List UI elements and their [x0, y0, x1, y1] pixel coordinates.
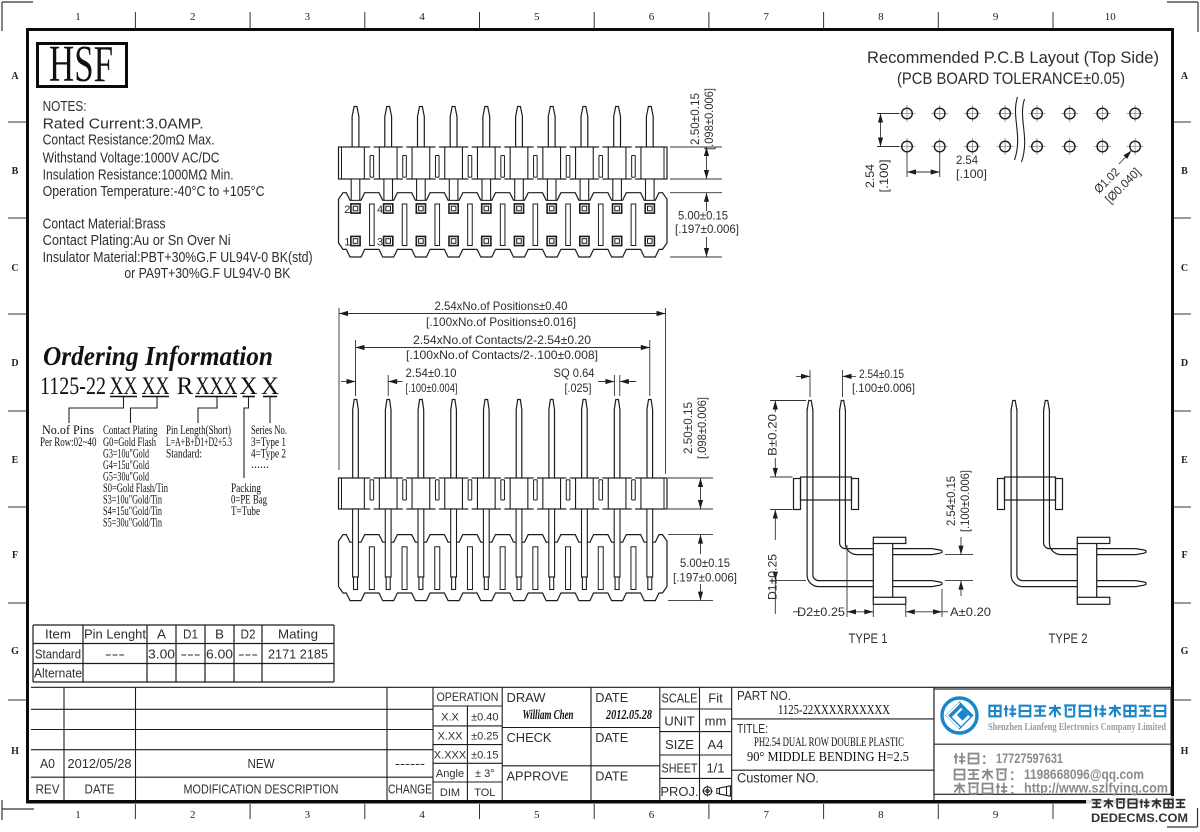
svg-text:[.100±0.004]: [.100±0.004]	[406, 381, 458, 395]
svg-text:DATE: DATE	[595, 769, 628, 784]
svg-text:TYPE 1: TYPE 1	[849, 630, 888, 646]
svg-text:8: 8	[878, 809, 884, 821]
svg-text:Contact Resistance:20mΩ Max.: Contact Resistance:20mΩ Max.	[43, 132, 215, 149]
svg-text:PH2.54 DUAL ROW DOUBLE PLASTIC: PH2.54 DUAL ROW DOUBLE PLASTIC	[754, 734, 904, 749]
svg-text:[.025]: [.025]	[565, 381, 592, 395]
svg-text:17727597631: 17727597631	[996, 750, 1063, 766]
svg-text:or PA9T+30%G.F UL94V-0 BK: or PA9T+30%G.F UL94V-0 BK	[124, 265, 290, 282]
svg-text:HSF: HSF	[49, 36, 113, 93]
svg-text:：: ：	[1009, 768, 1022, 783]
svg-text:Withstand Voltage:1000V AC/DC: Withstand Voltage:1000V AC/DC	[43, 150, 220, 167]
svg-text:6: 6	[649, 809, 655, 821]
svg-text:D: D	[1181, 358, 1188, 369]
svg-text:SIZE: SIZE	[665, 737, 694, 752]
svg-text:Pin Lenght: Pin Lenght	[84, 627, 146, 642]
svg-text:REV: REV	[36, 782, 60, 797]
svg-text:SQ 0.64: SQ 0.64	[554, 366, 595, 380]
svg-text:H: H	[1181, 746, 1189, 757]
svg-text:[.100xNo.of Positions±0.016]: [.100xNo.of Positions±0.016]	[426, 315, 576, 329]
svg-text:4: 4	[419, 11, 425, 23]
svg-text:C: C	[1181, 263, 1188, 274]
svg-text:3.00: 3.00	[148, 647, 175, 662]
svg-text:[.100xNo.of Contacts/2-.100±0.: [.100xNo.of Contacts/2-.100±0.008]	[406, 348, 598, 362]
svg-text:：: ：	[1009, 782, 1022, 797]
svg-text:[.197±0.006]: [.197±0.006]	[675, 222, 739, 236]
svg-text:CHANGE: CHANGE	[388, 782, 432, 797]
svg-text:[.100±0.006]: [.100±0.006]	[852, 381, 915, 395]
svg-text:E: E	[1181, 455, 1188, 466]
svg-text:mm: mm	[705, 714, 727, 729]
svg-text:2: 2	[190, 11, 196, 23]
svg-text:S5=30u"Gold/Tin: S5=30u"Gold/Tin	[103, 516, 162, 530]
svg-text:R: R	[177, 373, 194, 400]
svg-text:F: F	[12, 550, 18, 561]
svg-text:5: 5	[534, 809, 540, 821]
svg-text:PART NO.: PART NO.	[737, 688, 791, 703]
svg-text:......: ......	[251, 457, 269, 471]
svg-text:Rated Current:3.0AMP.: Rated Current:3.0AMP.	[43, 115, 204, 132]
svg-text:3: 3	[377, 237, 383, 249]
svg-text:2.54xNo.of Contacts/2-2.54±0.2: 2.54xNo.of Contacts/2-2.54±0.20	[413, 333, 591, 347]
svg-text:A: A	[1181, 71, 1189, 82]
svg-text:---: ---	[181, 647, 201, 662]
svg-text:B: B	[1181, 166, 1188, 177]
svg-text:E: E	[12, 455, 19, 466]
svg-text:A0: A0	[40, 756, 55, 771]
svg-text:http://www.szlfying.com: http://www.szlfying.com	[1024, 781, 1168, 796]
svg-text:PROJ.: PROJ.	[660, 784, 698, 799]
svg-text:DATE: DATE	[595, 690, 628, 705]
svg-text:2.54±0.15: 2.54±0.15	[944, 476, 958, 526]
svg-text:1: 1	[75, 11, 81, 23]
svg-text:Insulation Resistance:1000MΩ M: Insulation Resistance:1000MΩ Min.	[43, 167, 234, 184]
svg-text:Per Row:02~40: Per Row:02~40	[40, 435, 97, 449]
svg-text:MODIFICATION DESCRIPTION: MODIFICATION DESCRIPTION	[184, 782, 339, 797]
svg-text:Shenzhen Lianfeng Electronics: Shenzhen Lianfeng Electronics Company Li…	[988, 722, 1166, 733]
svg-text:A±0.20: A±0.20	[950, 605, 991, 619]
svg-text:2012.05.28: 2012.05.28	[605, 708, 652, 723]
svg-text:90° MIDDLE BENDING H=2.5: 90° MIDDLE BENDING H=2.5	[747, 749, 909, 764]
svg-text:Insulator Material:PBT+30%G.F: Insulator Material:PBT+30%G.F UL94V-0 BK…	[43, 249, 313, 266]
svg-text:8: 8	[878, 11, 884, 23]
svg-text:Ordering Information: Ordering Information	[43, 341, 273, 371]
svg-text:2: 2	[190, 809, 196, 821]
svg-text:Contact Material:Brass: Contact Material:Brass	[43, 216, 166, 233]
svg-text:T=Tube: T=Tube	[231, 504, 260, 518]
svg-text:G: G	[11, 646, 19, 657]
svg-text:±0.15: ±0.15	[471, 749, 498, 761]
svg-text:D: D	[11, 358, 18, 369]
svg-text:NOTES:: NOTES:	[43, 98, 87, 115]
svg-text:9: 9	[993, 11, 999, 23]
svg-text:5: 5	[534, 11, 540, 23]
svg-text:APPROVE: APPROVE	[507, 769, 569, 784]
svg-text:3: 3	[305, 809, 311, 821]
svg-text:Item: Item	[45, 627, 71, 642]
svg-text:A: A	[157, 627, 166, 642]
svg-text:TYPE 2: TYPE 2	[1049, 630, 1088, 646]
svg-text:B: B	[215, 627, 224, 642]
svg-text:------: ------	[395, 756, 425, 771]
svg-text:Operation Temperature:-40°C to: Operation Temperature:-40°C to +105°C	[43, 183, 265, 200]
svg-text:---: ---	[105, 647, 125, 662]
svg-text:William Chen: William Chen	[523, 708, 574, 723]
svg-text:[.100±0.006]: [.100±0.006]	[958, 470, 972, 532]
svg-text:：: ：	[981, 752, 994, 767]
svg-text:1: 1	[75, 809, 81, 821]
svg-text:3: 3	[305, 11, 311, 23]
svg-text:DIM: DIM	[440, 787, 460, 799]
svg-text:Fit: Fit	[708, 691, 723, 706]
svg-text:D2: D2	[241, 627, 256, 642]
svg-text:H: H	[11, 746, 19, 757]
svg-text:[.098±0.006]: [.098±0.006]	[702, 88, 716, 150]
svg-text:1/1: 1/1	[706, 761, 724, 776]
svg-text:[.100]: [.100]	[956, 167, 987, 181]
svg-text:2.50±0.15: 2.50±0.15	[688, 93, 702, 145]
svg-text:5.00±0.15: 5.00±0.15	[680, 556, 730, 570]
svg-text:D1: D1	[183, 627, 198, 642]
svg-text:DATE: DATE	[85, 782, 115, 797]
svg-text:2.54: 2.54	[863, 164, 877, 188]
svg-text:DEDECMS.COM: DEDECMS.COM	[1091, 811, 1188, 825]
svg-text:4: 4	[419, 809, 425, 821]
svg-text:Customer NO.: Customer NO.	[737, 771, 819, 786]
svg-text:2: 2	[344, 204, 350, 216]
svg-text:SCALE: SCALE	[662, 691, 698, 706]
svg-text:7: 7	[763, 809, 769, 821]
svg-text:2.50±0.15: 2.50±0.15	[681, 402, 695, 454]
svg-text:B: B	[12, 166, 19, 177]
svg-text:CHECK: CHECK	[507, 730, 552, 745]
svg-text:Angle: Angle	[436, 768, 464, 780]
svg-text:Standard: Standard	[35, 647, 81, 662]
svg-text:Alternate: Alternate	[34, 666, 82, 681]
svg-text:4: 4	[377, 204, 383, 216]
svg-text:9: 9	[993, 809, 999, 821]
svg-text:±0.40: ±0.40	[471, 712, 498, 724]
svg-text:X.X: X.X	[441, 712, 459, 724]
svg-text:SHEET: SHEET	[662, 761, 698, 776]
svg-text:±0.25: ±0.25	[471, 731, 498, 743]
svg-text:1125-22XXXXRXXXXX: 1125-22XXXXRXXXXX	[778, 703, 890, 718]
svg-text:2.54xNo.of Positions±0.40: 2.54xNo.of Positions±0.40	[435, 299, 568, 313]
svg-text:Contact Plating:Au or Sn Over: Contact Plating:Au or Sn Over Ni	[43, 232, 231, 249]
svg-text:A: A	[11, 71, 19, 82]
svg-text:X.XXX: X.XXX	[434, 749, 467, 761]
svg-text:2.54±0.15: 2.54±0.15	[859, 367, 904, 381]
svg-text:± 3°: ± 3°	[475, 768, 495, 780]
svg-text:X.XX: X.XX	[437, 731, 463, 743]
svg-text:Recommended P.C.B Layout (Top: Recommended P.C.B Layout (Top Side)	[867, 48, 1159, 67]
svg-text:UNIT: UNIT	[664, 714, 694, 729]
svg-text:B±0.20: B±0.20	[766, 414, 780, 456]
svg-text:F: F	[1181, 550, 1187, 561]
svg-text:2171 2185: 2171 2185	[268, 647, 328, 662]
svg-text:[.100]: [.100]	[877, 160, 891, 193]
svg-text:2.54±0.10: 2.54±0.10	[406, 366, 457, 380]
svg-text:NEW: NEW	[248, 756, 276, 771]
svg-text:5.00±0.15: 5.00±0.15	[678, 209, 728, 223]
svg-text:Mating: Mating	[278, 627, 318, 642]
svg-text:DATE: DATE	[595, 730, 628, 745]
svg-text:---: ---	[238, 647, 258, 662]
svg-text:10: 10	[1105, 11, 1117, 23]
svg-text:A4: A4	[708, 737, 724, 752]
svg-text:6.00: 6.00	[206, 647, 233, 662]
svg-text:C: C	[11, 263, 18, 274]
svg-text:OPERATION: OPERATION	[437, 690, 499, 704]
svg-text:D2±0.25: D2±0.25	[797, 605, 845, 619]
svg-text:1: 1	[344, 237, 350, 249]
svg-text:1125-22: 1125-22	[40, 373, 106, 400]
svg-text:TOL: TOL	[474, 787, 495, 799]
svg-text:D1±0.25: D1±0.25	[766, 554, 780, 600]
svg-text:(PCB BOARD TOLERANCE±0.05): (PCB BOARD TOLERANCE±0.05)	[897, 69, 1125, 88]
svg-text:7: 7	[763, 11, 769, 23]
svg-text:Standard:: Standard:	[166, 447, 202, 461]
svg-text:DRAW: DRAW	[507, 690, 547, 705]
svg-text:G: G	[1181, 646, 1189, 657]
svg-text:[.098±0.006]: [.098±0.006]	[695, 397, 709, 459]
svg-text:6: 6	[649, 11, 655, 23]
svg-text:2012/05/28: 2012/05/28	[68, 756, 132, 771]
svg-text:[.197±0.006]: [.197±0.006]	[673, 571, 737, 585]
svg-text:2.54: 2.54	[956, 153, 978, 167]
